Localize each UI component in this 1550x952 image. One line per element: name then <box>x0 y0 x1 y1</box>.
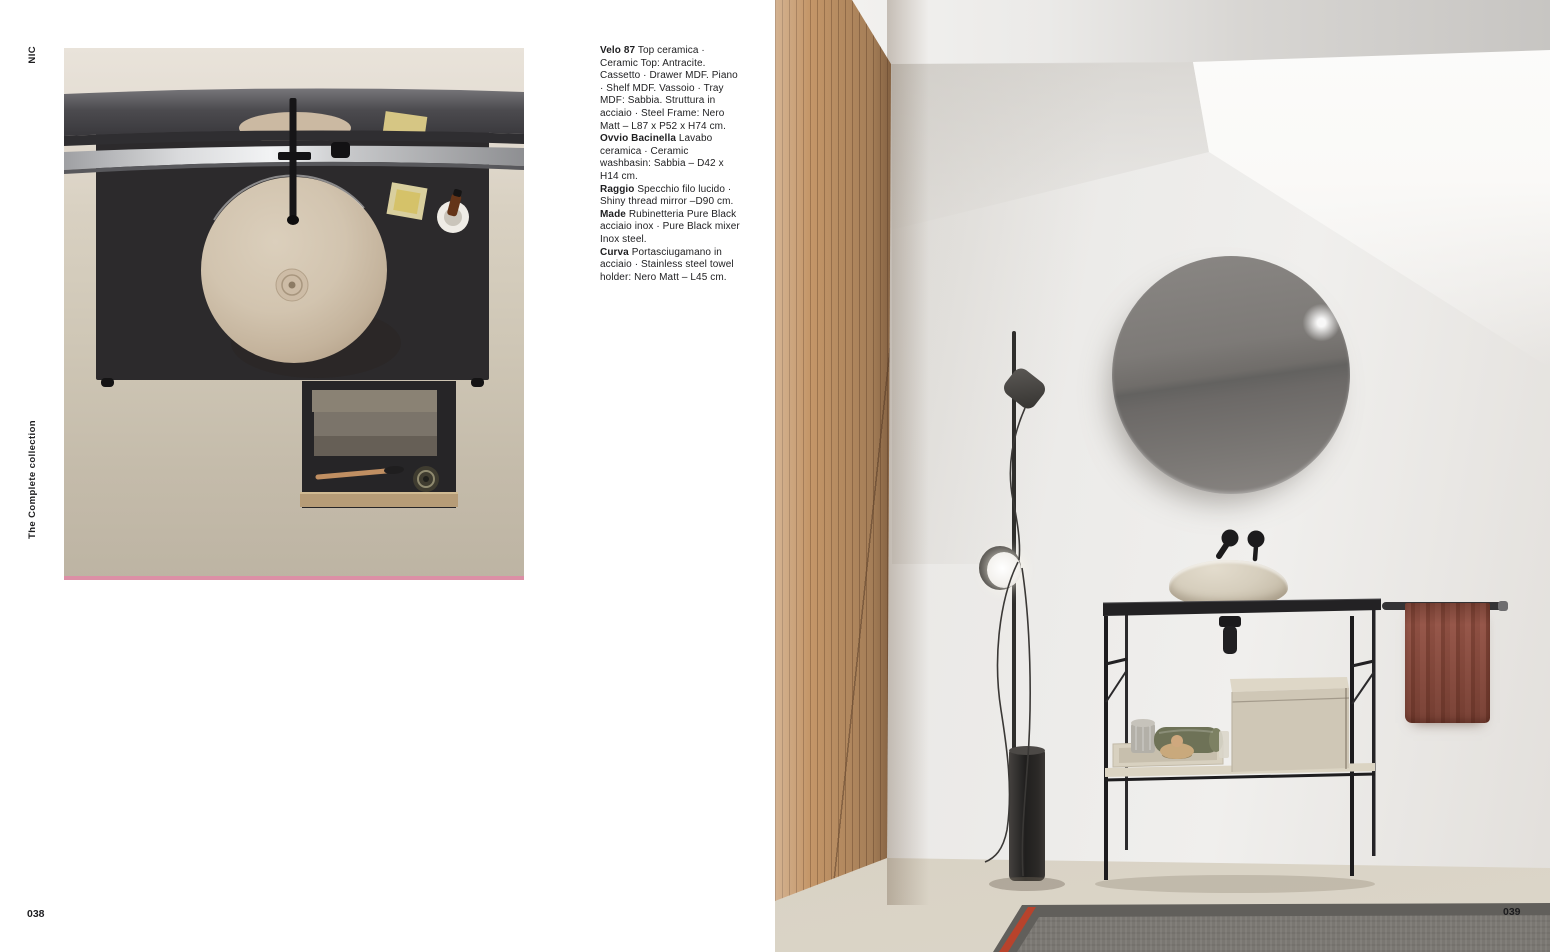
drain-pipe <box>1219 616 1241 654</box>
spec-segment: Made Rubinetteria Pure Black acciaio ino… <box>600 209 742 247</box>
page-number-right: 039 <box>1503 906 1521 918</box>
console-top <box>1103 599 1381 616</box>
photo-bathroom-scene: 039 <box>775 0 1550 952</box>
counter-foot-left <box>101 378 114 387</box>
spec-segment: Curva Portasciugamano in acciaio · Stain… <box>600 247 742 285</box>
drawer-front-edge <box>300 492 458 507</box>
soap-dish <box>386 182 427 220</box>
page-number-left: 038 <box>27 908 45 920</box>
faucet-knob <box>331 142 350 158</box>
faucet-spout <box>1219 544 1227 556</box>
shelf-tray <box>1113 719 1229 767</box>
vanity-topview-illustration <box>64 48 524 580</box>
spec-segment: Ovvio Bacinella Lavabo ceramica · Cerami… <box>600 133 742 183</box>
brand-vertical-label: NIC <box>27 46 38 64</box>
pink-accent-strip <box>64 576 524 580</box>
spec-segment: Raggio Specchio filo lucido · Shiny thre… <box>600 184 742 209</box>
faucet-lever <box>1255 546 1256 559</box>
photo-top-view-vanity <box>64 48 524 580</box>
open-drawer <box>300 381 458 508</box>
console-leg-front-left <box>1104 616 1108 880</box>
collection-vertical-label: The Complete collection <box>27 420 38 539</box>
lamp-cable <box>985 408 1030 876</box>
ribbed-cup <box>1131 719 1155 753</box>
product-specs: Velo 87 Top ceramica · Ceramic Top: Antr… <box>600 45 742 284</box>
console-leg-front-right <box>1350 616 1354 876</box>
counter-foot-right <box>471 378 484 387</box>
small-bottle <box>1219 731 1229 758</box>
scene-details <box>775 0 1550 952</box>
spec-segment: Velo 87 Top ceramica · Ceramic Top: Antr… <box>600 45 742 133</box>
wall-faucet <box>1219 530 1265 560</box>
catalog-spread: NIC The Complete collection 038 <box>0 0 1550 952</box>
storage-box <box>1230 677 1349 772</box>
terracotta-towel <box>1405 603 1490 723</box>
